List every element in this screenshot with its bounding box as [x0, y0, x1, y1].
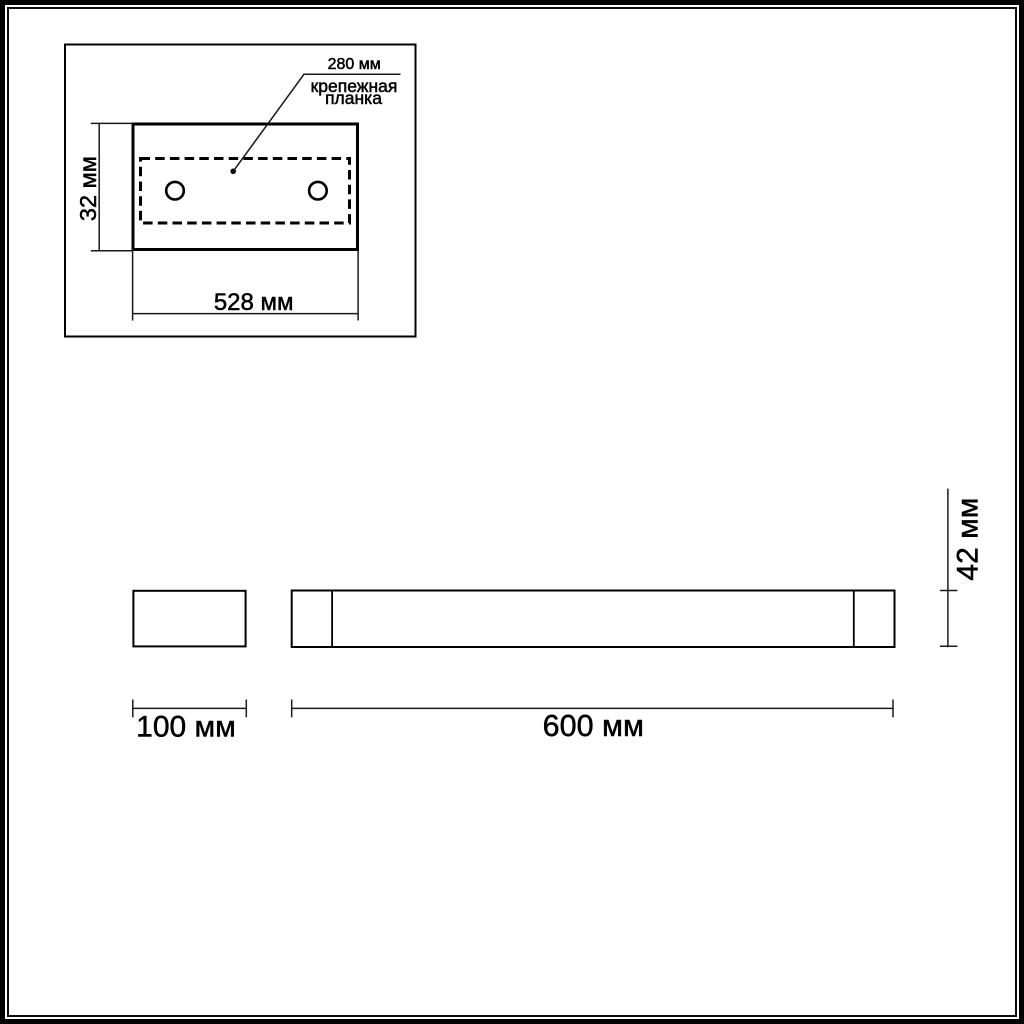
svg-text:600 мм: 600 мм: [543, 709, 644, 743]
svg-text:528 мм: 528 мм: [214, 289, 294, 316]
svg-text:100 мм: 100 мм: [136, 711, 236, 744]
svg-text:42 мм: 42 мм: [952, 498, 985, 581]
svg-text:280 мм: 280 мм: [328, 56, 381, 73]
svg-text:32 мм: 32 мм: [75, 156, 101, 221]
svg-text:планка: планка: [325, 88, 382, 108]
